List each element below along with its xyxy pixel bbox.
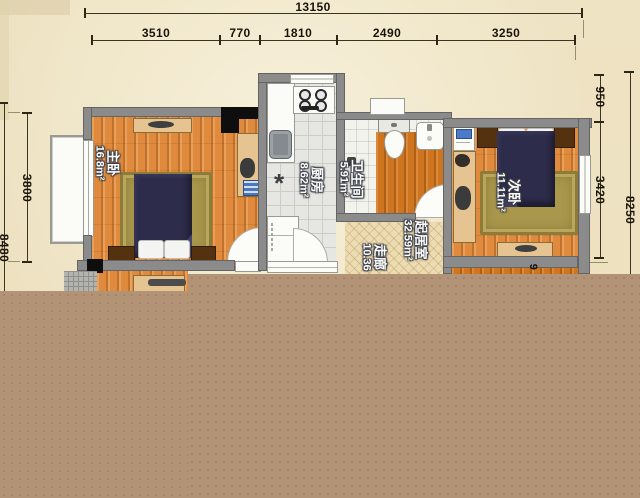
room-area: 5.91m² bbox=[337, 159, 350, 198]
dim-segment-value: 1810 bbox=[284, 26, 312, 40]
hall-tv bbox=[148, 279, 186, 286]
dim-extension bbox=[583, 20, 584, 38]
room-name: 起居室 bbox=[413, 220, 427, 261]
sill-line bbox=[268, 267, 337, 268]
kitchen-door-sill bbox=[267, 261, 338, 273]
dim-segment-value: 3510 bbox=[142, 26, 170, 40]
duct-shaft bbox=[370, 98, 405, 115]
dim-segment-value: 3250 bbox=[492, 26, 520, 40]
dim-tick bbox=[219, 35, 221, 45]
room-label-second-bedroom: 次卧 11.11m² bbox=[494, 172, 521, 212]
master-desk-chair bbox=[240, 158, 255, 178]
room-name: 卫生间 bbox=[349, 159, 363, 198]
dim-tick bbox=[0, 102, 8, 104]
dim-tick bbox=[624, 71, 634, 73]
room-label-kitchen: 厨房 8.62m² bbox=[297, 163, 324, 198]
dim-right-mid-value: 3420 bbox=[593, 176, 607, 204]
room-name: 走廊 bbox=[372, 243, 386, 271]
kitchen-window bbox=[290, 74, 334, 84]
room-label-living: 起居室 32.59m² bbox=[401, 220, 428, 261]
dim-partial-digit: 9 bbox=[527, 264, 539, 271]
brown-overlay-main bbox=[188, 274, 640, 498]
room-name: 次卧 bbox=[506, 172, 520, 212]
room-label-corridor: 走廊 10.36 bbox=[360, 243, 387, 271]
room-area: 10.36 bbox=[360, 243, 373, 271]
kitchen-left-wall bbox=[258, 73, 267, 271]
dim-tick bbox=[259, 35, 261, 45]
master-left-wall-upper bbox=[83, 107, 92, 140]
dim-line-left-outer bbox=[4, 103, 5, 291]
dim-left-outer-value: 8480 bbox=[0, 234, 11, 262]
second-bedroom-bottom-wall bbox=[443, 256, 578, 268]
desk-bag bbox=[455, 154, 470, 167]
kitchen-sink bbox=[269, 130, 292, 159]
kitchen-drain-symbol: * bbox=[269, 168, 289, 190]
dim-total-width-value: 13150 bbox=[295, 0, 330, 14]
dim-segment-value: 770 bbox=[229, 26, 250, 40]
bg-shade-top-left bbox=[0, 0, 70, 15]
dim-tick bbox=[84, 8, 86, 18]
room-area: 11.11m² bbox=[494, 172, 507, 212]
dim-line-total-width bbox=[85, 13, 583, 14]
dim-left-inner-value: 3800 bbox=[20, 174, 34, 202]
kitchen-right-wall bbox=[336, 73, 345, 222]
second-nightstand bbox=[477, 126, 498, 148]
basin-faucet bbox=[427, 124, 432, 131]
second-bedroom-left-wall bbox=[443, 118, 452, 274]
second-bedroom-cabinet bbox=[453, 126, 475, 151]
dim-right-top-value: 950 bbox=[593, 86, 607, 107]
master-nightstand bbox=[108, 246, 135, 261]
dim-tick bbox=[22, 112, 32, 114]
master-nightstand bbox=[191, 246, 216, 261]
room-label-master: 主卧 16.8m² bbox=[93, 146, 120, 181]
second-bedroom-window bbox=[579, 155, 591, 214]
master-dresser-handle bbox=[148, 121, 174, 128]
master-top-wall bbox=[83, 107, 229, 117]
room-label-bathroom: 卫生间 5.91m² bbox=[337, 159, 364, 198]
stove-handle bbox=[301, 106, 319, 110]
second-dresser-handle bbox=[515, 245, 537, 252]
bathroom-basin bbox=[416, 122, 444, 150]
dim-tick bbox=[336, 35, 338, 45]
master-pillow bbox=[164, 240, 190, 259]
fridge-label-marks bbox=[271, 223, 273, 253]
dim-right-outer-value: 8250 bbox=[623, 196, 637, 224]
second-bedroom-top-wall bbox=[443, 118, 592, 128]
dim-tick bbox=[574, 35, 576, 45]
second-desk-chair bbox=[455, 186, 471, 210]
floor-plan-canvas: 13150 3510 770 1810 2490 3250 3800 8480 … bbox=[0, 0, 640, 498]
cabinet-blue-mark bbox=[456, 129, 472, 139]
dim-extension bbox=[8, 112, 20, 113]
basin-drain bbox=[427, 136, 432, 141]
dim-tick bbox=[436, 35, 438, 45]
room-name: 主卧 bbox=[105, 146, 119, 181]
room-area: 32.59m² bbox=[401, 220, 414, 261]
dim-tick bbox=[594, 74, 604, 76]
dim-tick bbox=[581, 8, 583, 18]
dim-tick bbox=[594, 257, 604, 259]
room-area: 8.62m² bbox=[297, 163, 310, 198]
brown-overlay-left bbox=[0, 291, 188, 498]
balcony-wall-mosaic bbox=[64, 271, 97, 291]
dim-line-right-outer bbox=[630, 72, 631, 274]
corridor-strip-floor bbox=[452, 267, 578, 274]
dim-extension bbox=[575, 46, 576, 60]
room-name: 厨房 bbox=[309, 163, 323, 198]
cabinet-line bbox=[456, 142, 470, 143]
dim-tick bbox=[594, 121, 604, 123]
structural-column-v bbox=[221, 107, 239, 133]
toilet-flush-button bbox=[391, 123, 397, 127]
master-pillow bbox=[138, 240, 164, 259]
dim-tick bbox=[22, 261, 32, 263]
room-area: 16.8m² bbox=[93, 146, 106, 181]
dim-line-top-segments bbox=[92, 40, 575, 41]
dim-segment-value: 2490 bbox=[373, 26, 401, 40]
dim-tick bbox=[91, 35, 93, 45]
second-nightstand bbox=[554, 126, 575, 148]
